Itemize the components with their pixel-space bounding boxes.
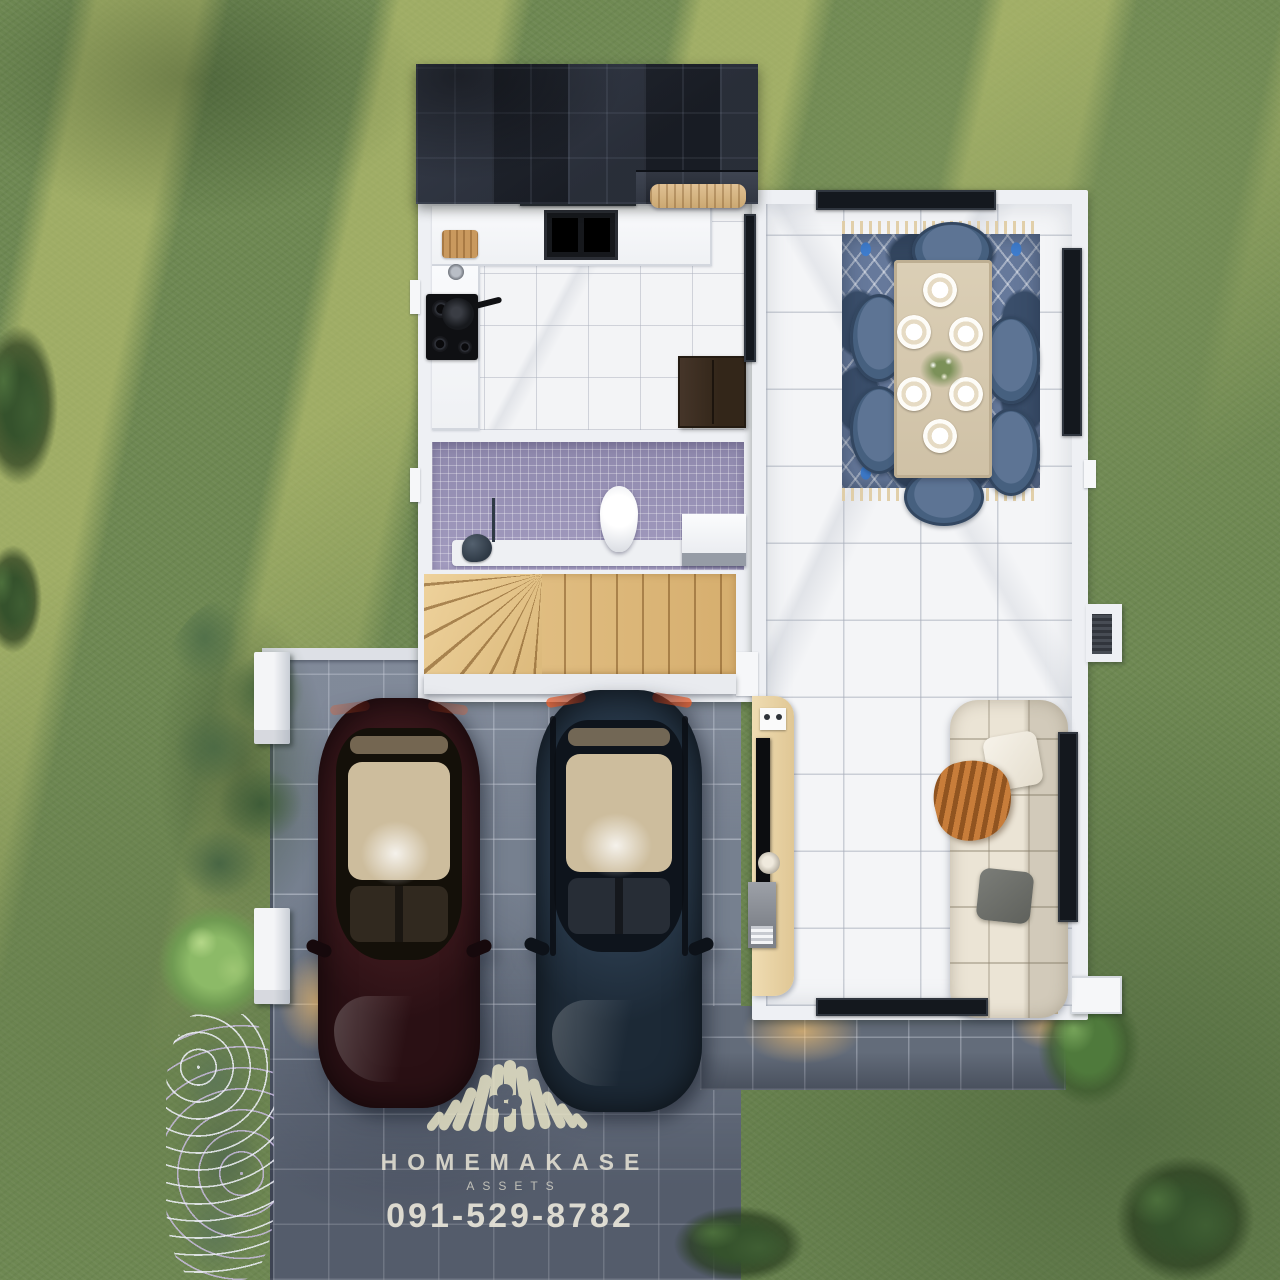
place-setting	[923, 419, 957, 453]
car-front-seats	[568, 878, 670, 934]
media-device	[760, 708, 786, 730]
south-tree	[674, 1206, 804, 1280]
frying-pan	[442, 298, 474, 330]
grey-pillow	[975, 867, 1034, 924]
car-front-seats	[350, 886, 448, 942]
living-glass-door-south	[816, 998, 988, 1016]
car-burgundy	[318, 698, 480, 1108]
wall-pilaster	[410, 280, 420, 314]
watermark-division: ASSETS	[352, 1179, 668, 1193]
place-setting	[923, 273, 957, 307]
living-window-east	[1058, 732, 1078, 922]
glass-reflection	[361, 821, 430, 886]
ac-vent	[1092, 614, 1112, 654]
vanity-sink	[682, 514, 746, 566]
carport-column-1	[254, 652, 290, 744]
partition-window	[744, 214, 756, 362]
dining-window-east	[1062, 248, 1082, 436]
car-glass-roof	[554, 720, 684, 952]
homemakase-logo-icon	[425, 1048, 595, 1140]
speaker	[758, 852, 780, 874]
kitchen-utensil	[448, 264, 464, 280]
watermark-brand: HOMEMAKASE	[352, 1149, 668, 1176]
wall-pilaster	[410, 468, 420, 502]
refrigerator-cabinet	[678, 356, 746, 428]
printer	[748, 882, 776, 948]
cutting-board	[442, 230, 478, 258]
floorplan-render: HOMEMAKASE ASSETS 091-529-8782	[0, 0, 1280, 1280]
shrub-row	[148, 598, 336, 930]
watermark: HOMEMAKASE ASSETS 091-529-8782	[352, 1048, 668, 1236]
glass-reflection	[580, 813, 652, 878]
carport-column-2	[254, 908, 290, 1004]
place-setting	[949, 317, 983, 351]
south-east-tree	[1116, 1156, 1254, 1280]
dining-window-north	[816, 190, 996, 210]
shower-head	[462, 534, 492, 562]
corner-post	[736, 652, 758, 696]
flower-centerpiece	[920, 350, 964, 388]
corner-step	[1070, 976, 1122, 1014]
roof-rail-left	[550, 716, 556, 956]
shower-rail	[492, 498, 495, 542]
tree-shadow-corner	[0, 0, 420, 220]
roof-rail-right	[682, 716, 688, 956]
entry-door-top	[650, 184, 746, 208]
flowering-border	[166, 1014, 274, 1280]
watermark-phone: 091-529-8782	[352, 1197, 668, 1236]
car-glass-roof	[336, 728, 462, 960]
winder-steps	[424, 574, 542, 674]
wall-pilaster	[1084, 460, 1096, 488]
kitchen-sink	[544, 210, 618, 260]
place-setting	[897, 315, 931, 349]
